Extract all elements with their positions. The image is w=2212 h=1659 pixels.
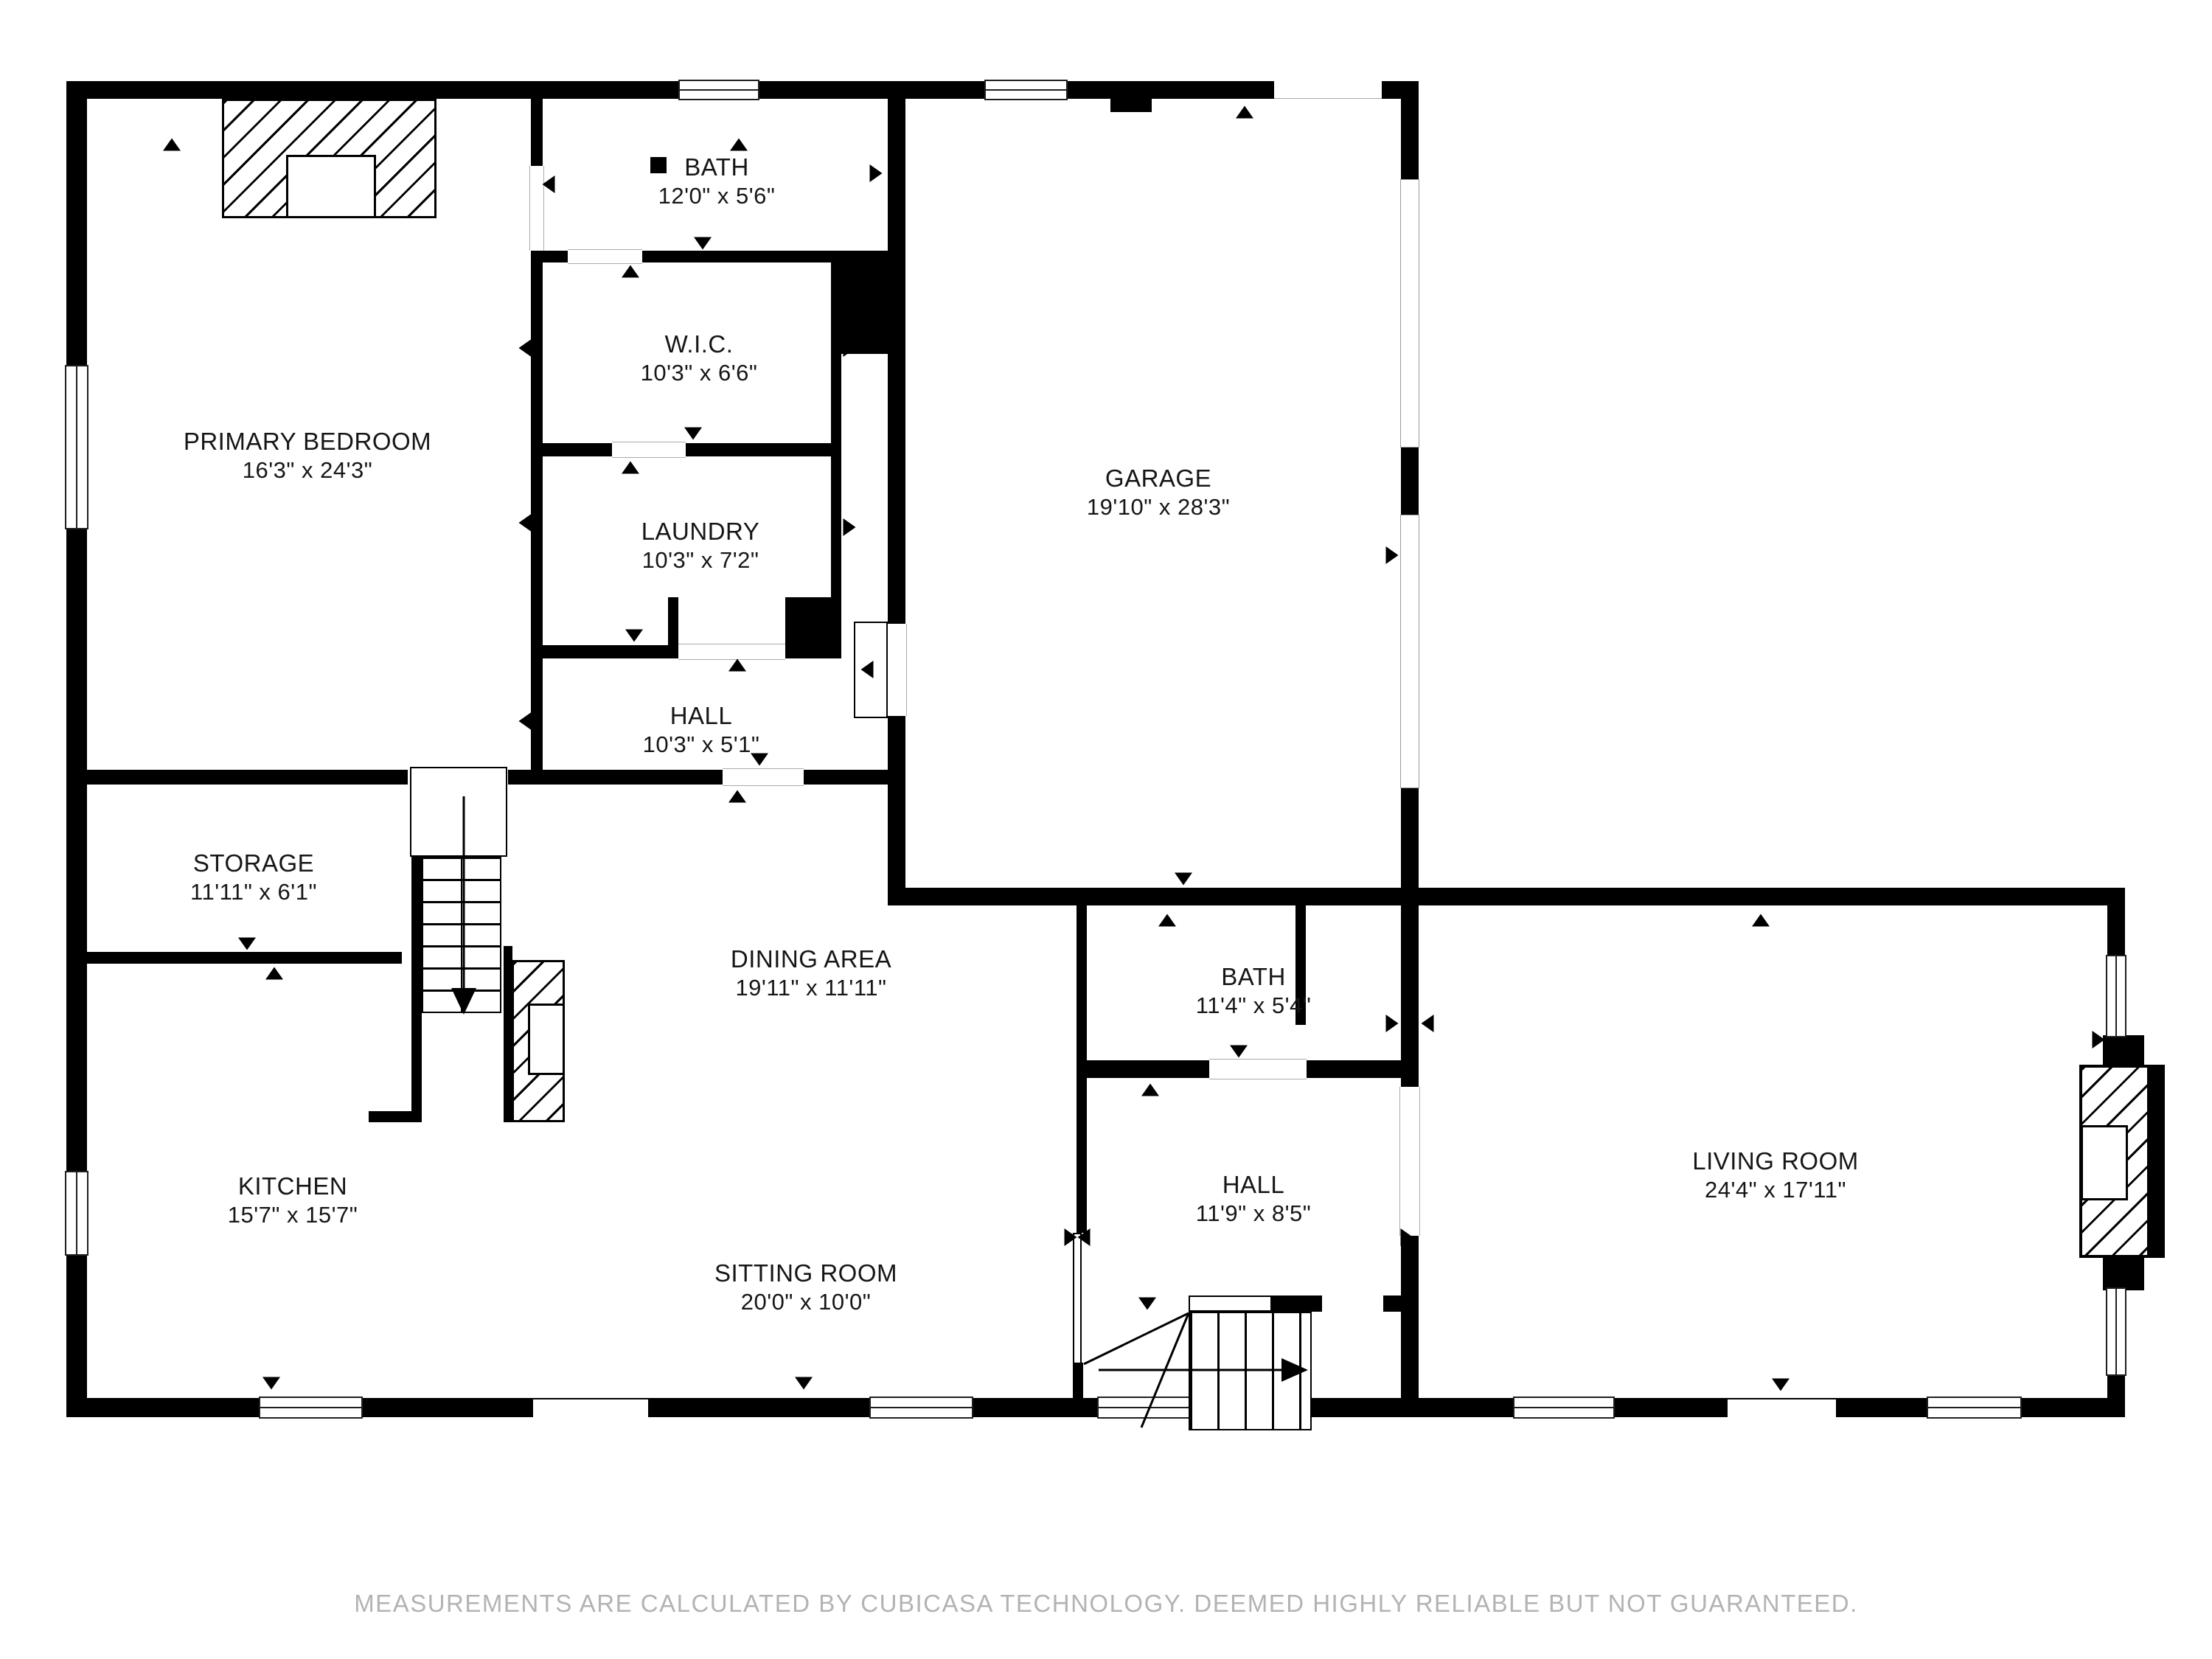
disclaimer-text: MEASUREMENTS ARE CALCULATED BY CUBICASA … [354, 1590, 1858, 1618]
door-marker-icon [795, 1377, 813, 1390]
stair-landing [1189, 1295, 1272, 1312]
door-marker-icon [1141, 1084, 1159, 1096]
wall [831, 260, 898, 354]
room-dims: 19'10" x 28'3" [1087, 493, 1230, 521]
window [869, 1397, 973, 1419]
room-name: GARAGE [1087, 464, 1230, 493]
wall [1073, 1363, 1083, 1399]
room-label-hall-upper: HALL 10'3" x 5'1" [643, 701, 760, 759]
door-marker-icon [730, 139, 748, 151]
window [1513, 1397, 1615, 1419]
door-marker-icon [625, 630, 643, 642]
room-dims: 19'11" x 11'11" [731, 974, 891, 1002]
room-name: BATH [658, 153, 776, 182]
door-marker-icon [1236, 106, 1253, 119]
door-marker-icon [684, 428, 702, 440]
door-opening [1728, 1399, 1836, 1417]
door-marker-icon [1138, 1298, 1156, 1310]
room-name: HALL [643, 701, 760, 731]
door-marker-icon [1752, 914, 1770, 927]
floor-plan: PRIMARY BEDROOM 16'3" x 24'3" BATH 12'0"… [0, 0, 2212, 1659]
door-marker-icon [519, 514, 532, 532]
door-marker-icon [1230, 1046, 1248, 1058]
door-marker-icon [1772, 1379, 1790, 1391]
door-marker-icon [543, 175, 555, 193]
door-marker-icon [519, 712, 532, 730]
room-dims: 11'11" x 6'1" [190, 878, 317, 906]
room-label-storage: STORAGE 11'11" x 6'1" [190, 849, 317, 906]
room-dims: 15'7" x 15'7" [228, 1201, 358, 1229]
room-dims: 11'4" x 5'4" [1196, 992, 1311, 1020]
room-name: DINING AREA [731, 945, 891, 974]
room-dims: 10'3" x 5'1" [643, 731, 760, 759]
door-opening [612, 442, 686, 458]
room-name: LIVING ROOM [1692, 1147, 1859, 1176]
door-marker-icon [728, 659, 746, 672]
door-marker-icon [1158, 914, 1176, 927]
door-marker-icon [262, 1377, 280, 1390]
door-marker-icon [1065, 1228, 1077, 1246]
door-opening [533, 1399, 648, 1417]
door-marker-icon [1175, 873, 1192, 886]
room-dims: 16'3" x 24'3" [184, 456, 431, 484]
window [2106, 955, 2126, 1037]
door-opening [1209, 1059, 1307, 1079]
room-dims: 10'3" x 7'2" [641, 546, 760, 574]
door-marker-icon [622, 462, 639, 474]
window [65, 1171, 88, 1256]
window [259, 1397, 363, 1419]
room-label-living-room: LIVING ROOM 24'4" x 17'11" [1692, 1147, 1859, 1204]
door-opening [678, 644, 785, 660]
door-opening [886, 624, 907, 716]
door-marker-icon [2093, 1031, 2105, 1048]
window [1400, 515, 1419, 788]
door-marker-icon [1386, 546, 1399, 564]
wall [66, 952, 402, 964]
room-name: W.I.C. [641, 330, 758, 359]
room-label-kitchen: KITCHEN 15'7" x 15'7" [228, 1172, 358, 1229]
room-label-garage: GARAGE 19'10" x 28'3" [1087, 464, 1230, 521]
wall [785, 597, 841, 658]
room-name: BATH [1196, 962, 1311, 992]
door-marker-icon [1401, 1228, 1413, 1246]
room-label-hall-right: HALL 11'9" x 8'5" [1196, 1170, 1311, 1228]
door-opening [1399, 1087, 1420, 1236]
door-marker-icon [1422, 1015, 1434, 1032]
wall [369, 1111, 422, 1122]
door-marker-icon [870, 164, 883, 182]
door-marker-icon [844, 518, 856, 536]
window [65, 365, 88, 529]
door-marker-icon [861, 661, 874, 678]
window [2106, 1287, 2126, 1376]
room-dims: 12'0" x 5'6" [658, 182, 776, 210]
window [678, 80, 759, 100]
room-dims: 24'4" x 17'11" [1692, 1176, 1859, 1204]
room-name: KITCHEN [228, 1172, 358, 1201]
room-name: PRIMARY BEDROOM [184, 427, 431, 456]
room-name: STORAGE [190, 849, 317, 878]
room-dims: 10'3" x 6'6" [641, 359, 758, 387]
wall [1383, 1295, 1401, 1312]
window [1927, 1397, 2022, 1419]
room-name: HALL [1196, 1170, 1311, 1200]
room-label-bath-top: BATH 12'0" x 5'6" [658, 153, 776, 210]
wall [411, 857, 422, 1122]
staircase-upper [422, 857, 501, 1013]
fireplace-insert [2081, 1125, 2128, 1200]
garage-door-opening [1274, 80, 1382, 99]
door-marker-icon [622, 265, 639, 278]
window [984, 80, 1068, 100]
fireplace-insert [286, 155, 376, 218]
door-opening [723, 768, 804, 786]
door-marker-icon [265, 967, 283, 980]
chimney-insert [528, 1004, 565, 1075]
door-marker-icon [844, 339, 856, 357]
wall [905, 888, 2125, 905]
fireplace-back [2147, 1065, 2165, 1258]
wall [531, 443, 841, 456]
floorplan-page: { "floorplan": { "rooms": [ {"name": "PR… [0, 0, 2212, 1659]
door-marker-icon [238, 938, 256, 950]
room-label-wic: W.I.C. 10'3" x 6'6" [641, 330, 758, 387]
garage-door-mark [1110, 99, 1152, 112]
room-name: SITTING ROOM [714, 1259, 897, 1288]
window [1097, 1397, 1199, 1419]
wall [668, 597, 678, 645]
room-label-bath-right: BATH 11'4" x 5'4" [1196, 962, 1311, 1020]
room-label-dining-area: DINING AREA 19'11" x 11'11" [731, 945, 891, 1002]
wall [1270, 1295, 1322, 1312]
room-dims: 11'9" x 8'5" [1196, 1200, 1311, 1228]
door-marker-icon [519, 339, 532, 357]
door-marker-icon [728, 790, 746, 803]
room-label-primary-bedroom: PRIMARY BEDROOM 16'3" x 24'3" [184, 427, 431, 484]
room-name: LAUNDRY [641, 517, 760, 546]
door-opening [568, 249, 642, 264]
door-marker-icon [1078, 1228, 1091, 1246]
staircase-lower [1189, 1312, 1312, 1430]
room-label-laundry: LAUNDRY 10'3" x 7'2" [641, 517, 760, 574]
stair-rail [1073, 1233, 1082, 1364]
stair-landing [410, 767, 507, 857]
door-marker-icon [694, 237, 712, 250]
door-marker-icon [163, 139, 181, 151]
room-dims: 20'0" x 10'0" [714, 1288, 897, 1316]
window [1400, 179, 1419, 448]
room-label-sitting-room: SITTING ROOM 20'0" x 10'0" [714, 1259, 897, 1316]
door-marker-icon [1386, 1015, 1399, 1032]
